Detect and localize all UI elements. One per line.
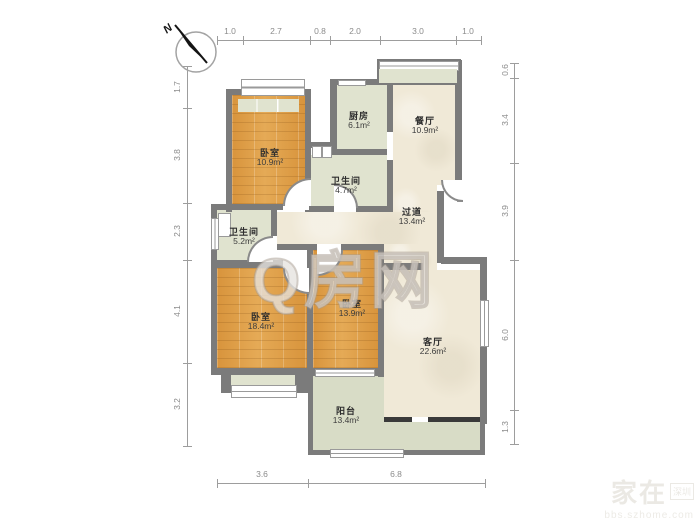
dimension-line-left [187, 66, 188, 446]
window-balcony-bottom [330, 449, 404, 458]
dim-label: 3.9 [500, 205, 510, 217]
wall-segment [480, 424, 485, 455]
window-living-right [480, 300, 489, 347]
door-arc-entrance [441, 180, 463, 202]
wall-segment [226, 89, 232, 212]
room-label-living: 客厅22.6m² [420, 337, 446, 357]
sliding-door-gap [412, 417, 428, 422]
dim-tick [481, 36, 482, 45]
north-arrow-icon: N [162, 16, 224, 80]
sliding-door-living-balcony [384, 417, 480, 422]
dim-label: 1.0 [462, 26, 474, 36]
dim-label: 1.3 [500, 421, 510, 433]
dim-tick [183, 108, 192, 109]
bedroom-closet-strip [238, 99, 299, 112]
dining-bay-sill [379, 69, 457, 83]
dim-label: 1.7 [172, 81, 182, 93]
room-label-kitchen: 厨房6.1m² [348, 111, 370, 131]
dimension-line-top [217, 40, 482, 41]
dim-tick [510, 260, 519, 261]
window-bedroom-bl-bay [231, 385, 297, 398]
dim-label: 0.8 [314, 26, 326, 36]
dim-tick [308, 479, 309, 488]
dim-label: 6.0 [500, 329, 510, 341]
room-label-balcony: 阳台13.4m² [333, 406, 359, 426]
dim-tick [510, 63, 519, 64]
dim-tick [485, 479, 486, 488]
window-bedroom-m-balcony [315, 369, 375, 377]
watermark-qfang: Q房网 [252, 230, 436, 320]
dim-label: 2.0 [349, 26, 361, 36]
dim-tick [183, 363, 192, 364]
svg-text:N: N [162, 21, 176, 36]
dim-tick [243, 36, 244, 45]
bay-stub [221, 375, 231, 393]
window-kitchen [338, 80, 366, 86]
dim-tick [217, 479, 218, 488]
dim-label: 2.3 [172, 225, 182, 237]
watermark-jiazai-badge: 深圳 [670, 483, 694, 500]
dim-tick [510, 163, 519, 164]
compass: N [162, 16, 224, 80]
dim-tick [510, 444, 519, 445]
dim-label: 2.7 [270, 26, 282, 36]
dim-tick [380, 36, 381, 45]
dim-label: 3.6 [256, 469, 268, 479]
dim-tick [183, 446, 192, 447]
dimension-line-right [514, 63, 515, 444]
room-label-hallway: 过道13.4m² [399, 207, 425, 227]
wall-segment [330, 149, 393, 155]
dim-label: 0.6 [500, 64, 510, 76]
watermark-jiazai-main: 家在 [611, 473, 667, 510]
dim-tick [510, 78, 519, 79]
wall-segment [211, 368, 313, 375]
window-bedroom-tl-bay [241, 79, 305, 96]
dim-label: 3.2 [172, 398, 182, 410]
floor-plan: 卧室10.9m² 厨房6.1m² 餐厅10.9m² 卫生间4.7m² 过道13.… [0, 0, 700, 525]
dim-tick [330, 36, 331, 45]
dim-tick [183, 203, 192, 204]
dim-label: 4.1 [172, 305, 182, 317]
dim-label: 3.4 [500, 114, 510, 126]
dim-label: 3.0 [412, 26, 424, 36]
dim-tick [510, 410, 519, 411]
dim-label: 1.0 [224, 26, 236, 36]
dim-tick [310, 36, 311, 45]
shaft-box [322, 146, 332, 158]
bay-stub [295, 375, 309, 393]
door-gap-kitchen [387, 132, 393, 160]
room-label-bathroom-a: 卫生间4.7m² [331, 176, 361, 196]
watermark-jiazai: 家在深圳 bbs.szhome.com [604, 473, 694, 521]
dim-tick [183, 260, 192, 261]
room-label-dining: 餐厅10.9m² [412, 116, 438, 136]
watermark-jiazai-url: bbs.szhome.com [604, 510, 694, 521]
wall-segment [437, 191, 444, 263]
room-label-bedroom-tl: 卧室10.9m² [257, 148, 283, 168]
bedroom-bl-bay-sill [231, 375, 295, 385]
shaft-box [312, 146, 322, 158]
dimension-line-bottom [217, 483, 486, 484]
dim-tick [456, 36, 457, 45]
dim-label: 6.8 [390, 469, 402, 479]
dim-label: 3.8 [172, 149, 182, 161]
